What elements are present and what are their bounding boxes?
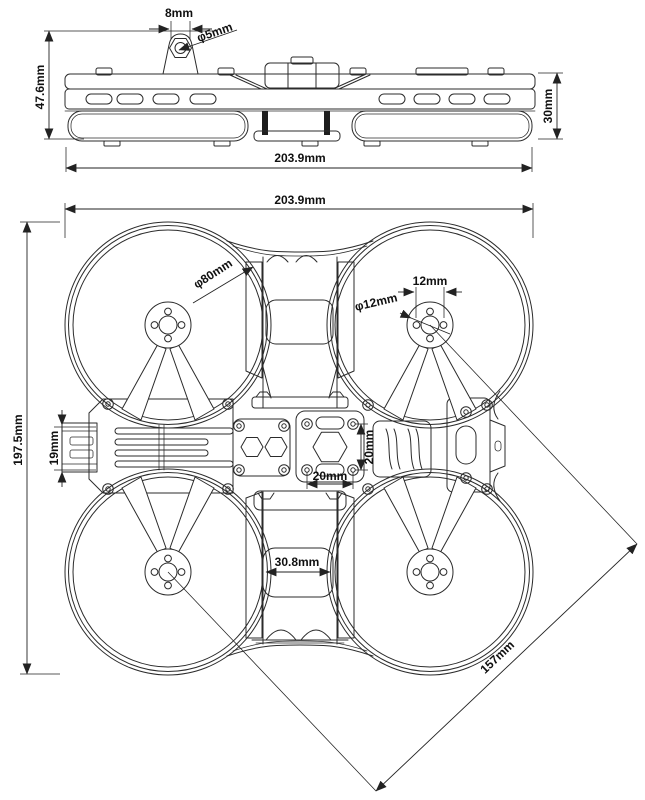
motor-mount-bottom-right xyxy=(384,477,476,595)
dim-label-duct-height: 30mm xyxy=(541,89,555,124)
dim-label-motor-mount-diameter: φ12mm xyxy=(353,290,398,313)
top-plate xyxy=(65,74,535,89)
dim-label-overall-length-side: 203.9mm xyxy=(274,151,325,165)
camera-protrusion xyxy=(62,423,97,472)
dim-label-overall-height: 47.6mm xyxy=(33,65,47,110)
frame-screws xyxy=(103,399,493,495)
motor-mount-top-right xyxy=(384,302,476,420)
dim-label-overall-width-top: 203.9mm xyxy=(274,193,325,207)
dim-label-battery-slot-width: 30.8mm xyxy=(275,555,320,569)
antenna-tab xyxy=(163,34,198,74)
dim-label-stack-spacing-horizontal: 20mm xyxy=(313,469,348,483)
drawing-canvas: 8mm φ5mm 47.6mm 30mm 203.9mm xyxy=(0,0,645,800)
dim-label-duct-diameter: φ80mm xyxy=(191,256,235,291)
dim-stack-spacing-vertical: 20mm xyxy=(355,424,376,470)
dim-label-motor-hole-spacing: 12mm xyxy=(413,274,448,288)
dim-overall-height: 47.6mm xyxy=(33,31,216,139)
rail-slots xyxy=(86,94,510,104)
dim-duct-height: 30mm xyxy=(538,73,563,139)
dim-label-camera-mount-width: 19mm xyxy=(47,431,61,466)
motor-mount-top-left xyxy=(122,302,214,420)
dim-overall-length-side: 203.9mm xyxy=(66,147,532,172)
camera-rails xyxy=(115,425,233,470)
dim-label-tab-width: 8mm xyxy=(165,6,193,20)
camera-cage xyxy=(254,111,340,141)
dim-battery-slot-width: 30.8mm xyxy=(266,555,330,572)
top-battery-channel xyxy=(246,256,354,409)
technical-drawing-page: 8mm φ5mm 47.6mm 30mm 203.9mm xyxy=(0,0,645,800)
top-view xyxy=(62,222,533,675)
dim-duct-diameter: φ80mm xyxy=(191,256,253,303)
landing-feet xyxy=(104,141,488,146)
connector-slot xyxy=(456,426,476,464)
dim-label-stack-spacing-vertical: 20mm xyxy=(362,430,376,465)
dim-label-diagonal-wheelbase: 157mm xyxy=(477,638,517,677)
dim-stack-spacing-horizontal: 20mm xyxy=(307,469,353,489)
right-shaped-plate xyxy=(373,421,431,477)
dim-label-overall-depth: 197.5mm xyxy=(11,414,25,465)
duct-side-profiles xyxy=(68,111,532,141)
camera-mount-side xyxy=(230,57,370,89)
side-rail xyxy=(65,89,535,109)
motor-mount-bottom-left xyxy=(122,477,214,595)
dim-antenna-hole: φ5mm xyxy=(179,20,237,50)
side-view xyxy=(65,34,535,146)
dim-label-antenna-hole: φ5mm xyxy=(195,20,234,45)
